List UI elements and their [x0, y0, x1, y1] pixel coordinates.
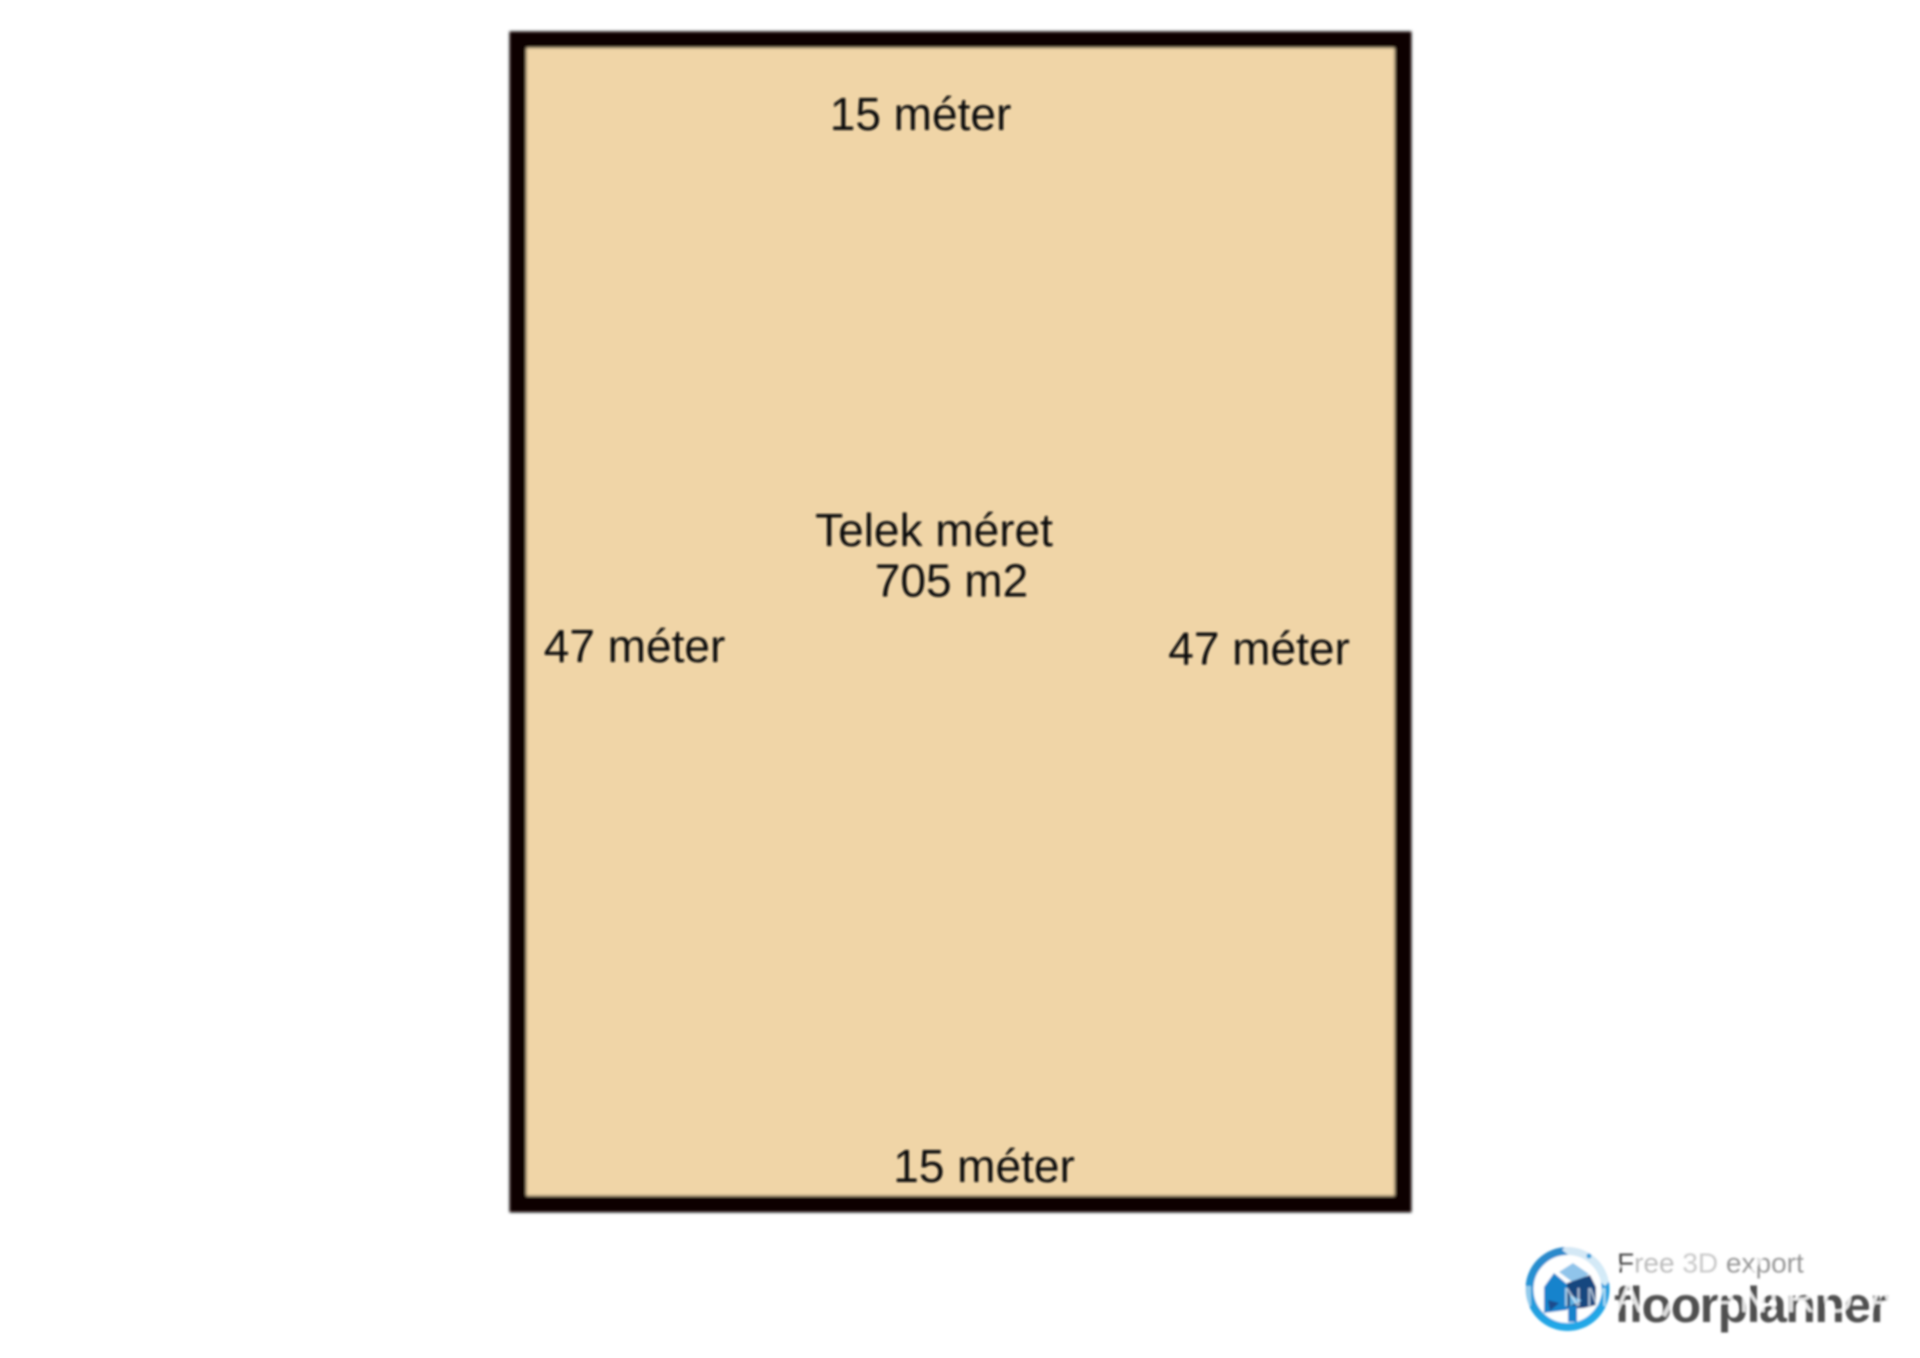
svg-text:A: A — [1615, 1277, 1642, 1321]
svg-text:R: R — [1786, 1277, 1815, 1321]
svg-text:N: N — [1739, 1277, 1768, 1321]
svg-text:N: N — [1563, 1282, 1582, 1312]
svg-text:47 méter: 47 méter — [544, 620, 726, 672]
svg-text:A: A — [1712, 1277, 1739, 1321]
svg-text:M: M — [1586, 1282, 1608, 1312]
svg-text:O: O — [1822, 1277, 1853, 1321]
svg-text:15 méter: 15 méter — [893, 1140, 1075, 1192]
svg-text:I: I — [1768, 1277, 1779, 1321]
svg-text:Free 3D export: Free 3D export — [1617, 1248, 1804, 1279]
svg-text:15 méter: 15 méter — [830, 88, 1012, 140]
svg-text:Telek méret: Telek méret — [815, 504, 1053, 556]
svg-text:47 méter: 47 méter — [1168, 623, 1350, 675]
svg-text:705 m2: 705 m2 — [875, 555, 1028, 607]
svg-text:A: A — [1868, 1277, 1895, 1321]
